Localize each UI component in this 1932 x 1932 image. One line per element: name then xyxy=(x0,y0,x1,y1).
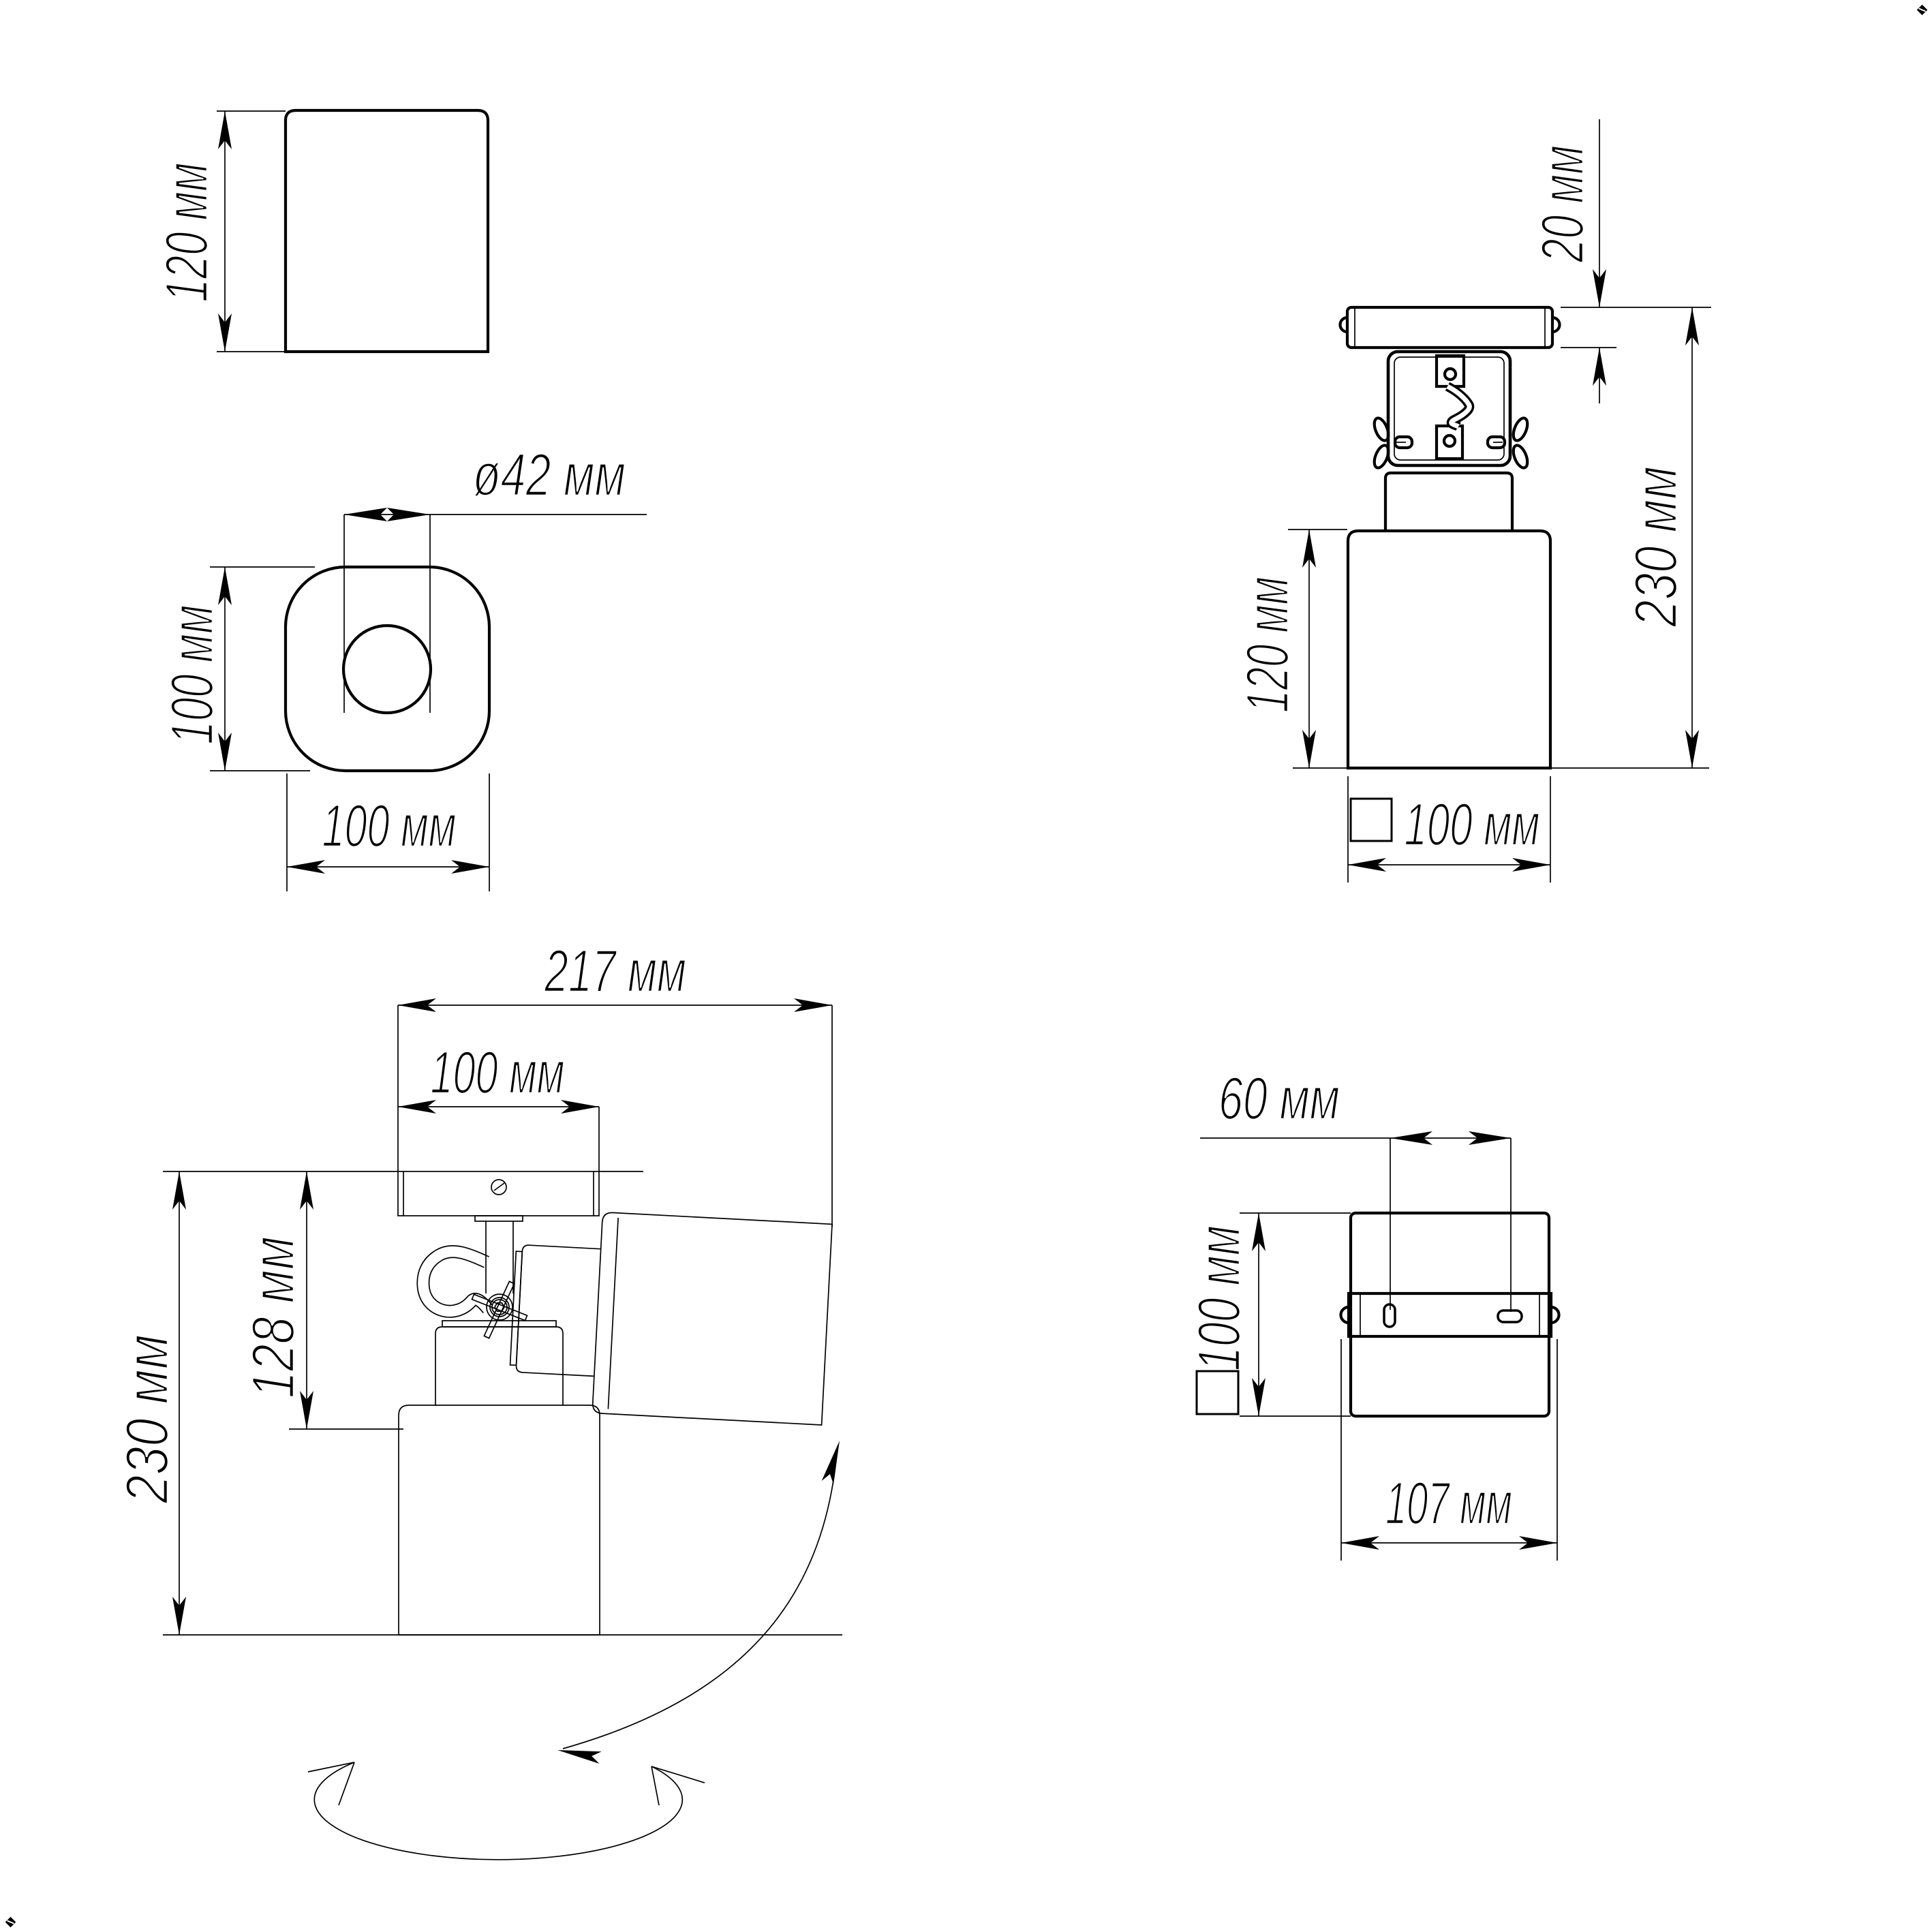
svg-text:100 мм: 100 мм xyxy=(1185,1225,1253,1371)
svg-text:100 мм: 100 мм xyxy=(1405,791,1540,858)
svg-text:107 мм: 107 мм xyxy=(1385,1469,1512,1537)
svg-text:128 мм: 128 мм xyxy=(239,1236,307,1398)
svg-text:100 мм: 100 мм xyxy=(158,605,226,745)
svg-text:100 мм: 100 мм xyxy=(431,1039,565,1106)
svg-text:60 мм: 60 мм xyxy=(1218,1064,1340,1132)
svg-text:120 мм: 120 мм xyxy=(1233,577,1301,713)
svg-text:120 мм: 120 мм xyxy=(153,163,220,303)
svg-text:230 мм: 230 мм xyxy=(113,1334,181,1504)
svg-text:20 мм: 20 мм xyxy=(1529,145,1596,263)
svg-text:230 мм: 230 мм xyxy=(1622,466,1689,628)
svg-text:ø42 мм: ø42 мм xyxy=(473,441,626,508)
svg-text:100 мм: 100 мм xyxy=(322,792,457,859)
svg-text:217 мм: 217 мм xyxy=(544,937,686,1005)
